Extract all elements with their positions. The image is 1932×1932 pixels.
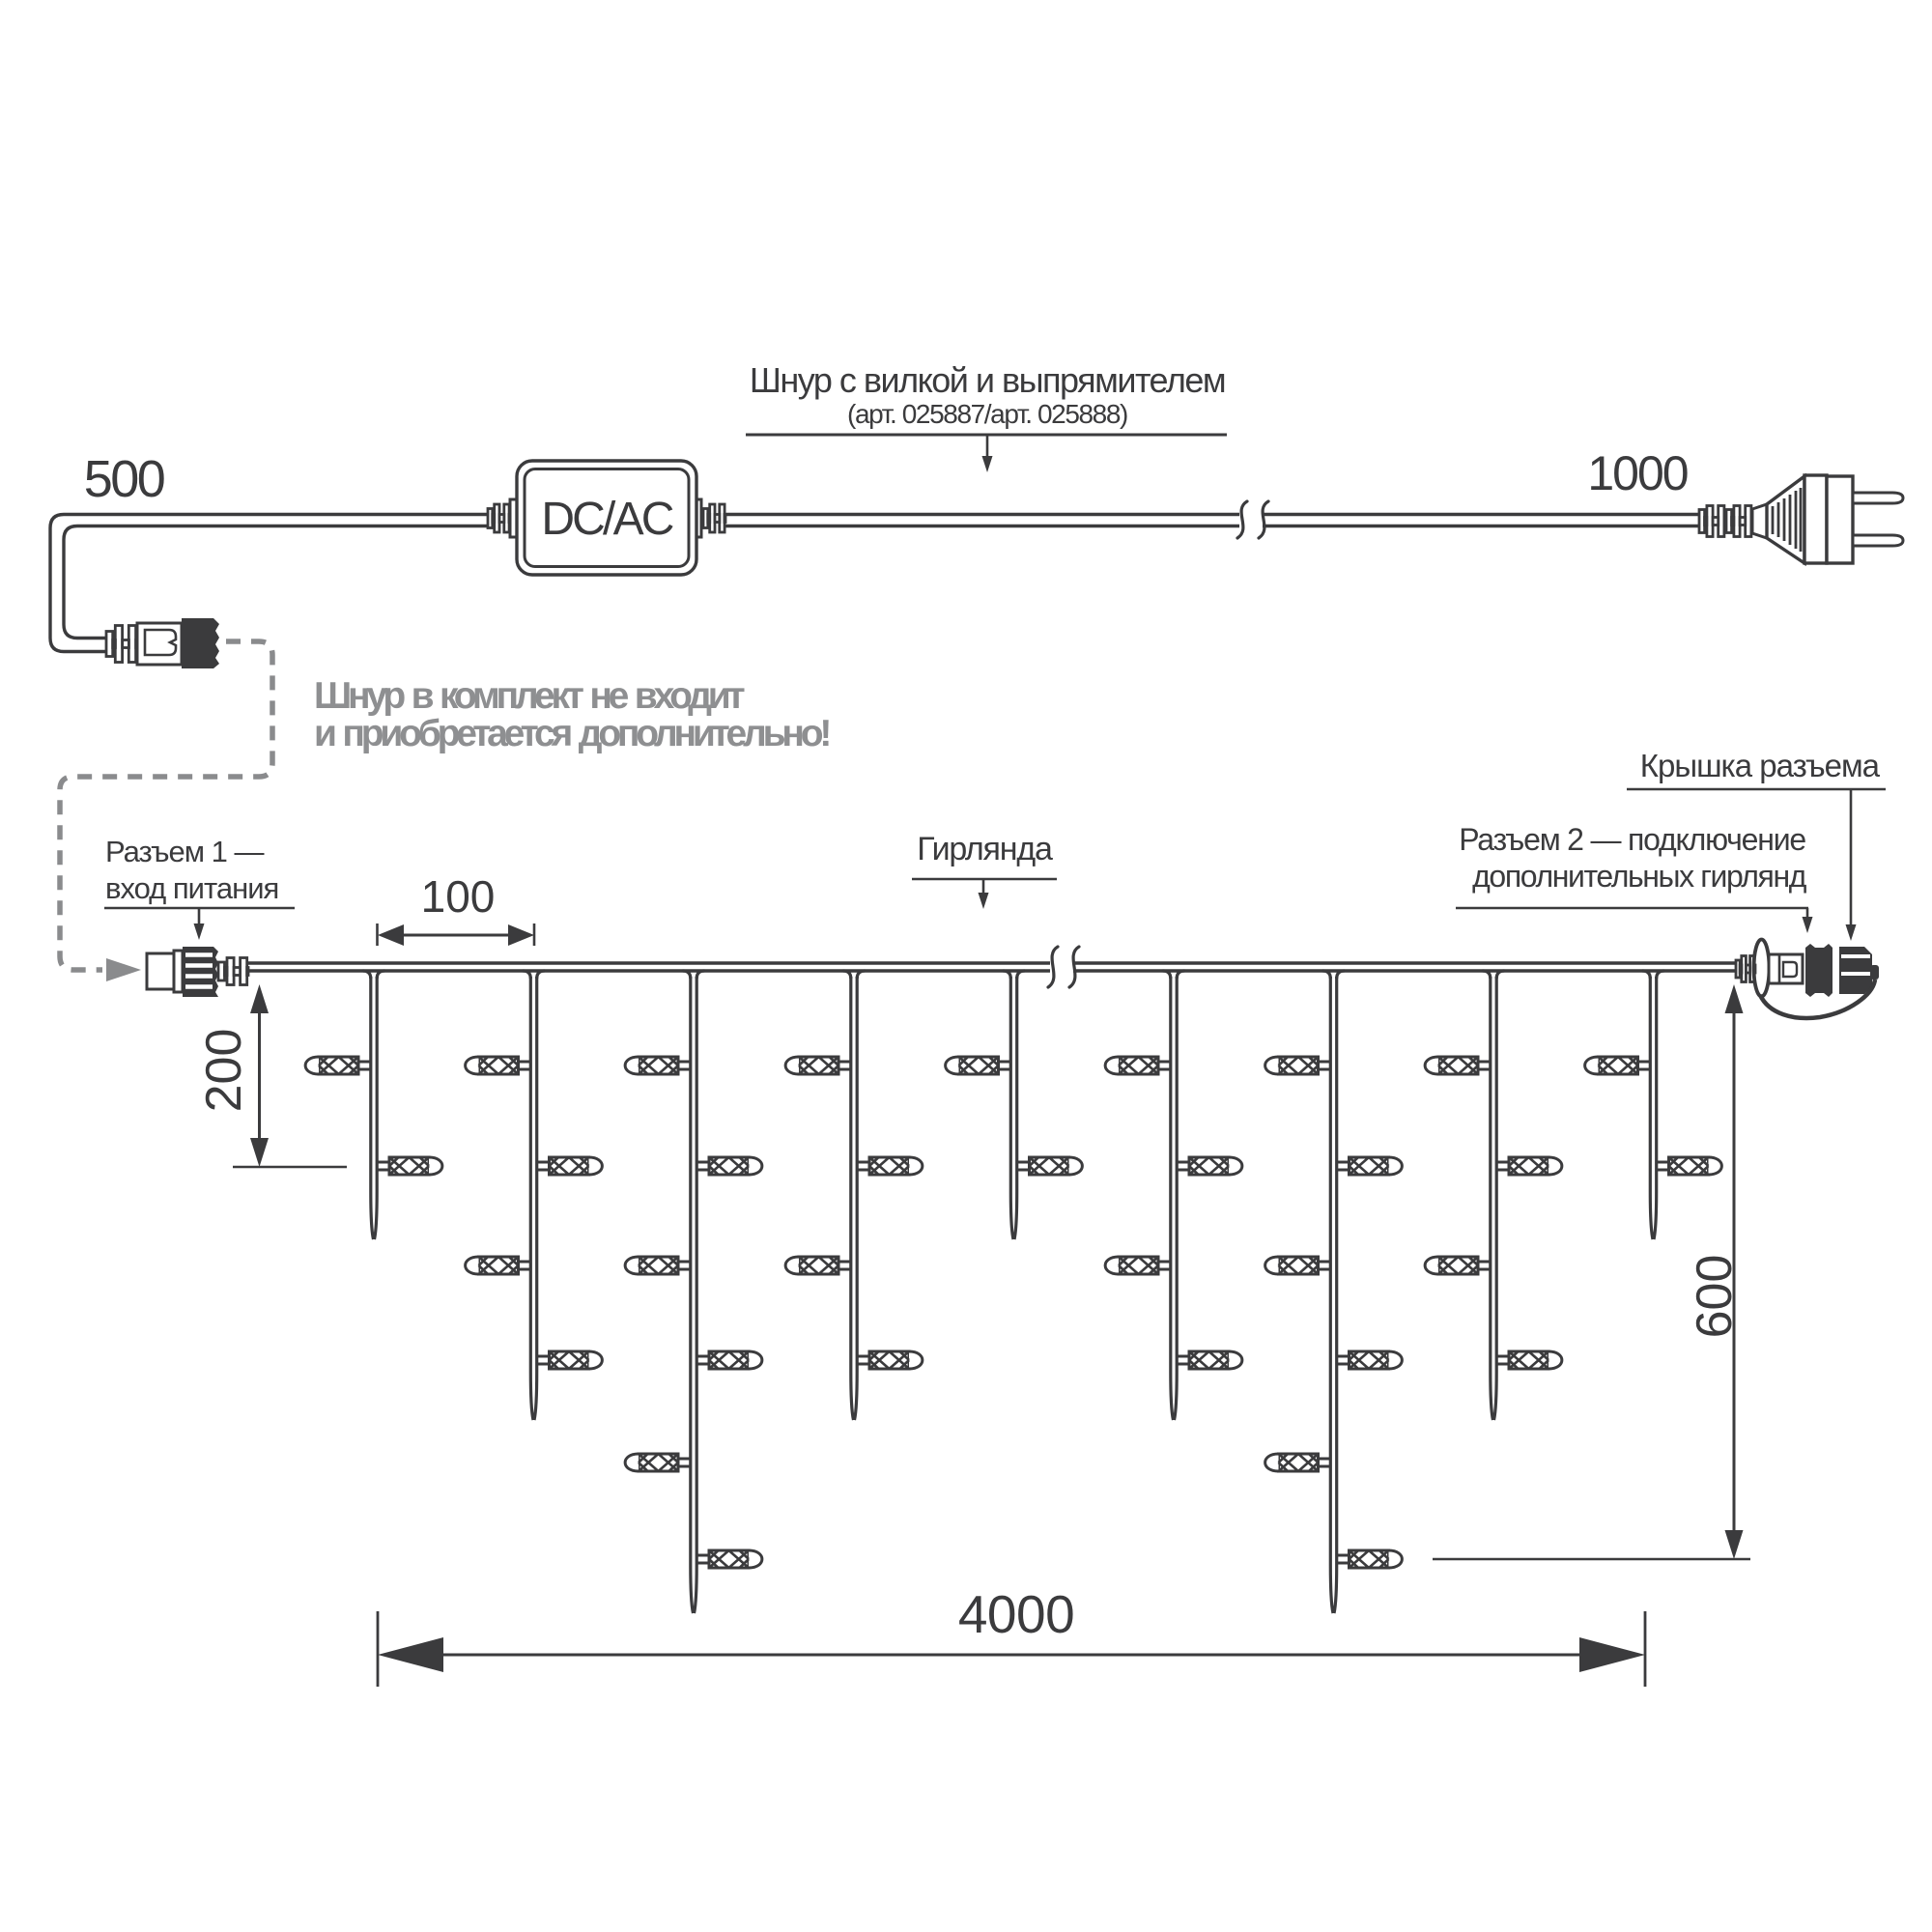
- svg-text:Гирлянда: Гирлянда: [917, 831, 1053, 867]
- svg-text:DC/AC: DC/AC: [541, 494, 672, 545]
- svg-text:200: 200: [196, 1029, 252, 1113]
- svg-text:Разъем 2 — подключение: Разъем 2 — подключение: [1459, 822, 1805, 857]
- svg-text:Шнур с вилкой и выпрямителем: Шнур с вилкой и выпрямителем: [750, 360, 1225, 400]
- svg-text:Крышка разъема: Крышка разъема: [1640, 748, 1881, 783]
- svg-text:дополнительных гирлянд: дополнительных гирлянд: [1472, 859, 1807, 894]
- svg-text:Шнур в комплект не входит: Шнур в комплект не входит: [314, 675, 746, 717]
- svg-text:100: 100: [421, 871, 496, 922]
- svg-text:и приобретается дополнительно!: и приобретается дополнительно!: [314, 713, 829, 754]
- svg-text:500: 500: [84, 450, 164, 508]
- svg-text:4000: 4000: [958, 1584, 1074, 1644]
- svg-text:1000: 1000: [1587, 446, 1687, 500]
- svg-text:Разъем 1 —: Разъем 1 —: [105, 835, 264, 868]
- svg-text:600: 600: [1687, 1255, 1743, 1339]
- svg-text:(арт. 025887/арт. 025888): (арт. 025887/арт. 025888): [847, 399, 1127, 429]
- svg-text:вход питания: вход питания: [105, 871, 278, 905]
